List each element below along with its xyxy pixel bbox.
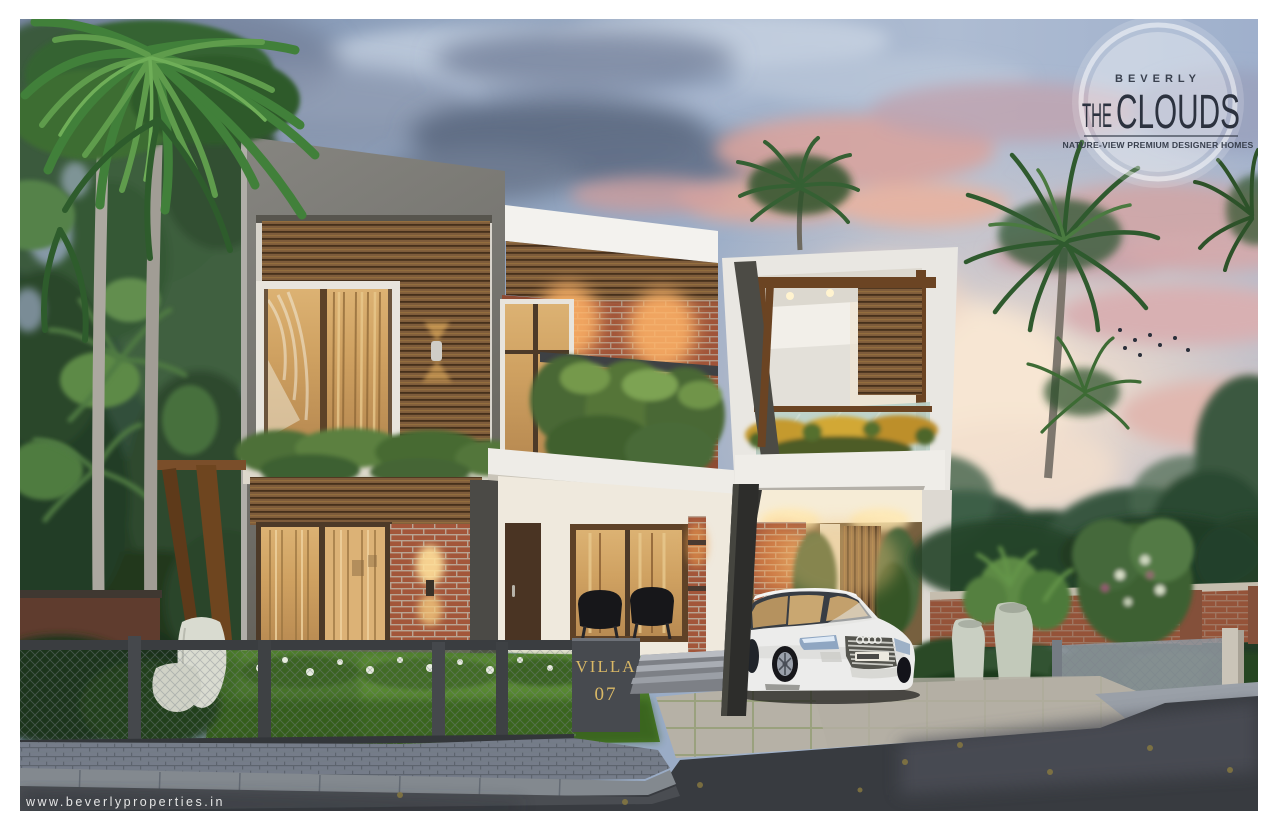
svg-text:www.beverlyproperties.in: www.beverlyproperties.in xyxy=(25,795,225,809)
svg-text:NATURE-VIEW PREMIUM DESIGNER H: NATURE-VIEW PREMIUM DESIGNER HOMES xyxy=(1063,140,1254,150)
svg-text:THE: THE xyxy=(1082,97,1112,135)
svg-text:VILLA: VILLA xyxy=(576,657,637,676)
svg-text:07: 07 xyxy=(595,684,618,705)
svg-text:BEVERLY: BEVERLY xyxy=(1115,73,1201,85)
svg-text:CLOUDS: CLOUDS xyxy=(1116,86,1240,139)
